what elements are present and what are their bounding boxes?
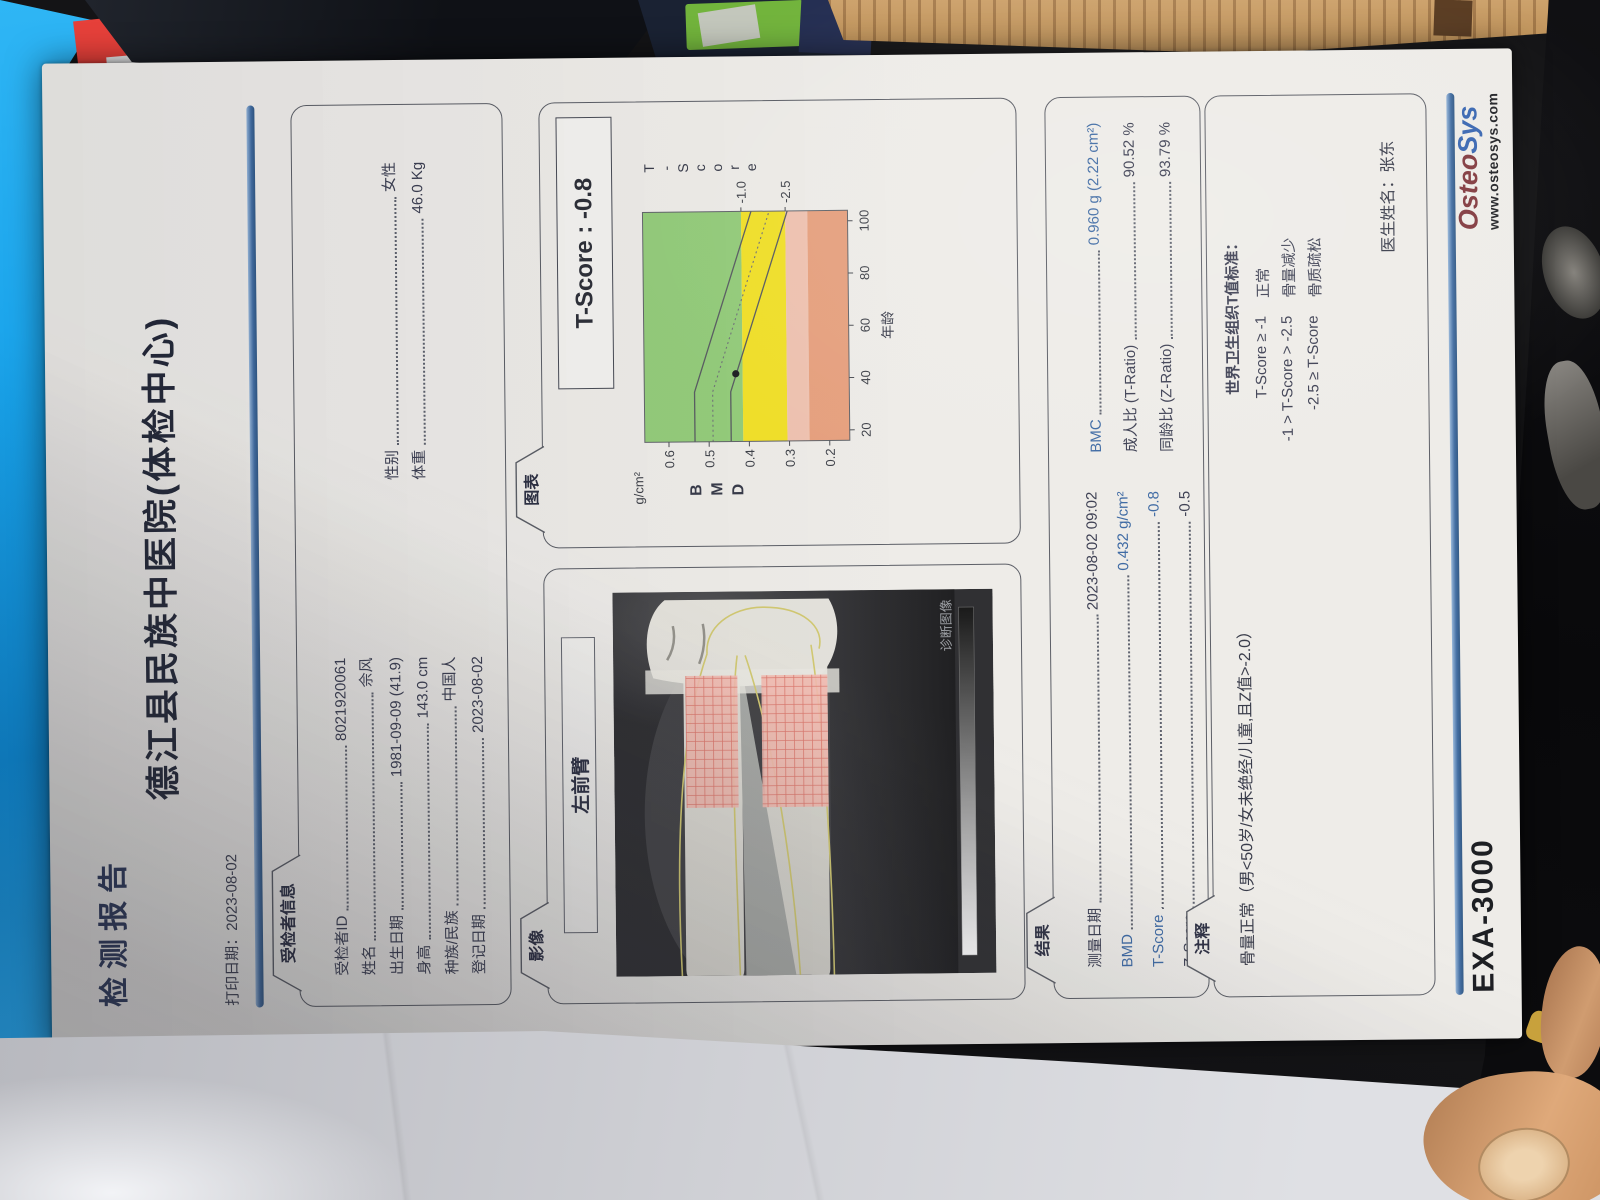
roi-name-box: 左前臂 [561,637,598,933]
report-document: 检测报告 德江县民族中医院(体检中心) 打印日期：2023-08-02 受检者信… [42,48,1522,1053]
left-axis-label-char: M [709,482,726,496]
field-row: 姓名佘风 [349,657,380,975]
y-axis-unit: g/cm² [631,471,646,504]
right-axis-label-char: o [709,163,725,171]
section-chart: 图表 T-Score : -0.8 -1.0-2.50.60.50.40.30.… [538,98,1021,549]
chart-band [741,211,788,441]
section-tab: 注释 [1185,894,1217,982]
header-divider-rule [246,106,263,1008]
field-row: 出生日期1981-09-09 (41.9) [376,657,407,975]
section-tab: 受检者信息 [270,854,302,992]
section-image: 影像 左前臂 [543,563,1026,1004]
who-row: -1 > T-Score > -2.5骨量减少 [1277,124,1307,506]
section-tab: 图表 [514,445,546,533]
patient-fields-right: 性别女性 体重46.0 Kg [371,162,429,481]
overlapping-gray-sheet [0,1024,1600,1200]
section-tab: 影像 [519,901,551,989]
device-model: EXA-3000 [1466,838,1502,993]
green-box-background [685,0,805,50]
field-row: 种族/民族中国人 [431,656,462,974]
dark-wood-stripe [1433,0,1472,37]
section-label-image: 影像 [523,901,548,989]
field-row: 身高143.0 cm [404,657,435,975]
assessment-comment: 骨量正常（男<50岁/女未绝经/儿童,且Z值>-2.0） [1231,623,1259,966]
left-axis-label-char: D [730,484,747,496]
result-row: BMC0.960 g (2.22 cm²) [1066,123,1105,453]
section-tab: 结果 [1025,896,1057,984]
x-tick: 40 [858,370,873,385]
right-axis-label-char: e [743,163,759,171]
wood-table-surface [828,0,1600,54]
print-date-value: 2023-08-02 [223,854,241,931]
report-title: 检测报告 [88,855,134,1007]
tscore-mark: -2.5 [778,180,793,203]
brand-url: www.osteosys.com [1484,92,1501,230]
right-axis-label-char: T [641,164,657,173]
field-row: 登记日期2023-08-02 [459,656,490,974]
x-tick: 100 [856,210,871,232]
y-tick: 0.4 [742,449,757,467]
result-row: 成人比 (T-Ratio)90.52 % [1102,122,1141,452]
section-patient-info: 受检者信息 受检者ID8021920061 姓名佘风 出生日期1981-09-0… [290,103,511,1007]
field-row: 受检者ID8021920061 [321,658,352,976]
result-row: 测量日期2023-08-02 09:02 [1069,492,1105,968]
print-date-label: 打印日期： [224,931,242,1006]
section-notes: 注释 骨量正常（男<50岁/女未绝经/儿童,且Z值>-2.0） 世界卫生组织T值… [1204,93,1435,997]
patient-fields-left: 受检者ID8021920061 姓名佘风 出生日期1981-09-09 (41.… [321,656,489,976]
y-tick: 0.2 [823,448,838,466]
x-tick: 80 [857,266,872,281]
field-row: 体重46.0 Kg [398,162,429,480]
who-standard-title: 世界卫生组织T值标准： [1220,124,1245,506]
tscore-result-box: T-Score : -0.8 [555,117,614,390]
osteosys-logo: OsteoSys [1452,93,1484,231]
xray-watermark: 诊断图像 [939,599,955,651]
brand-block: OsteoSys www.osteosys.com [1452,92,1501,230]
photo-of-bone-density-report: 检测报告 德江县民族中医院(体检中心) 打印日期：2023-08-02 受检者信… [0,0,1600,1200]
chart-band [785,211,810,441]
hospital-title: 德江县民族中医院(体检中心) [128,62,189,1052]
result-row: BMD0.432 g/cm² [1100,491,1136,967]
y-tick: 0.6 [662,450,677,468]
y-tick: 0.5 [702,450,717,468]
results-right: BMC0.960 g (2.22 cm²) 成人比 (T-Ratio)90.52… [1066,122,1177,453]
print-date-line: 打印日期：2023-08-02 [220,854,243,1006]
result-row: T-Score-0.8 [1131,491,1167,967]
doctor-name-line: 医生姓名：张东 [1374,141,1399,253]
section-label-chart: 图表 [518,446,543,534]
tscore-mark: -1.0 [734,181,749,204]
roi-hatch-ulna [761,675,828,808]
report-paper: 检测报告 德江县民族中医院(体检中心) 打印日期：2023-08-02 受检者信… [42,48,1522,1053]
left-axis-label-char: B [688,484,705,496]
result-row: 同龄比 (Z-Ratio)93.79 % [1138,122,1177,452]
right-axis-label-char: c [692,164,708,171]
who-standard-block: 世界卫生组织T值标准： T-Score ≥ -1正常 -1 > T-Score … [1220,123,1333,506]
roi-hatch-radius [685,675,738,808]
results-left: 测量日期2023-08-02 09:02 BMD0.432 g/cm² T-Sc… [1069,491,1198,968]
forearm-xray-image: 诊断图像 [612,589,996,977]
bmd-age-chart: -1.0-2.50.60.50.40.30.220406080100g/cm²年… [628,138,917,507]
x-axis-label: 年龄 [879,311,895,339]
section-label-notes: 注释 [1189,895,1214,983]
section-results: 结果 测量日期2023-08-02 09:02 BMD0.432 g/cm² T… [1044,96,1209,1000]
who-row: -2.5 ≥ T-Score骨质疏松 [1303,123,1333,505]
y-tick: 0.3 [783,449,798,467]
who-row: T-Score ≥ -1正常 [1251,124,1281,506]
chart-band [807,210,850,440]
x-tick: 60 [858,318,873,333]
section-label-results: 结果 [1029,896,1054,984]
field-row: 性别女性 [371,162,402,480]
right-axis-label-char: r [726,165,742,170]
chart-band [642,211,743,442]
right-axis-label-char: - [658,165,674,170]
right-axis-label-char: S [675,163,691,173]
section-label-patient: 受检者信息 [274,854,299,992]
x-tick: 20 [859,422,874,437]
